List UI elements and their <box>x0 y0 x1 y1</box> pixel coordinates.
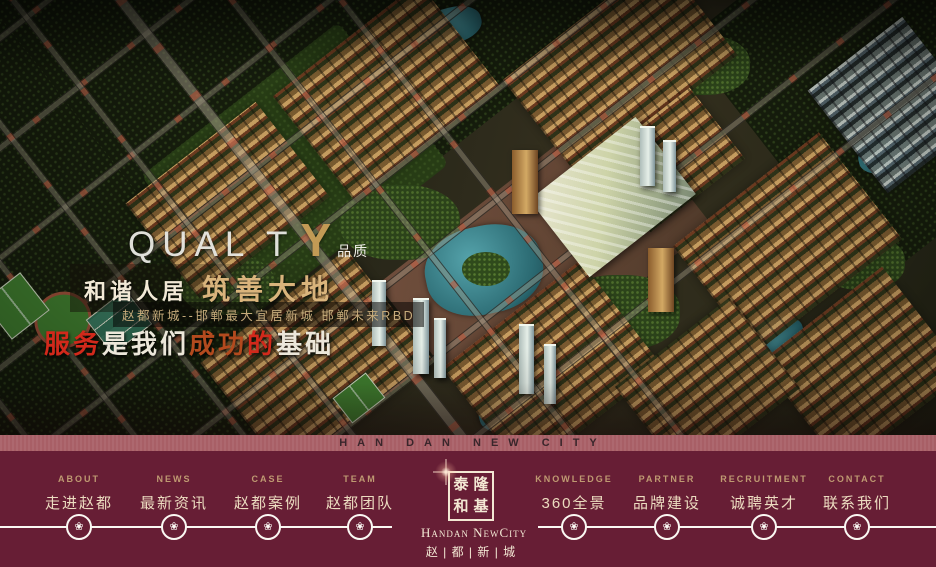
nav-team-cn: 赵都团队 <box>305 492 415 513</box>
handan-new-city-banner: HAN DAN NEW CITY <box>0 435 936 451</box>
rosette-ornament-icon: ❀ <box>844 514 870 540</box>
service-part-5: 基础 <box>276 329 334 359</box>
nav-divider-line-right <box>538 526 936 528</box>
seal-char: 隆 <box>471 475 491 495</box>
nav-item-about[interactable]: ABOUT 走进赵都 ❀ <box>24 474 134 513</box>
quality-headline: QUAL T Y 品质 <box>128 222 369 265</box>
rosette-ornament-icon: ❀ <box>561 514 587 540</box>
rosette-ornament-icon: ❀ <box>255 514 281 540</box>
nav-item-contact[interactable]: CONTACT 联系我们 ❀ <box>802 474 912 513</box>
nav-partner-cn: 品牌建设 <box>612 492 722 513</box>
seal-char: 基 <box>471 497 491 517</box>
logo-seal-icon: 泰 隆 和 基 <box>448 471 494 521</box>
site-logo[interactable]: 泰 隆 和 基 Handan NewCity 赵 | 都 | 新 | 城 <box>421 471 521 560</box>
nav-divider-line-left <box>0 526 392 528</box>
rosette-ornament-icon: ❀ <box>654 514 680 540</box>
quality-headline-cn: 品质 <box>337 241 369 261</box>
footer-nav: ABOUT 走进赵都 ❀ NEWS 最新资讯 ❀ CASE 赵都案例 ❀ TEA… <box>0 451 936 567</box>
nav-about-en: ABOUT <box>24 474 134 484</box>
nav-item-partner[interactable]: PARTNER 品牌建设 ❀ <box>612 474 722 513</box>
rosette-ornament-icon: ❀ <box>66 514 92 540</box>
quality-headline-y: Y <box>300 222 331 259</box>
rosette-ornament-icon: ❀ <box>751 514 777 540</box>
nav-contact-en: CONTACT <box>802 474 912 484</box>
service-slogan: 服务是我们成功的基础 <box>44 324 334 361</box>
logo-name-cn: 赵 | 都 | 新 | 城 <box>421 543 521 560</box>
nav-team-en: TEAM <box>305 474 415 484</box>
service-part-2: 是我们 <box>102 329 189 359</box>
service-part-1: 服务 <box>44 329 102 359</box>
nav-item-team[interactable]: TEAM 赵都团队 ❀ <box>305 474 415 513</box>
nav-about-cn: 走进赵都 <box>24 492 134 513</box>
rosette-ornament-icon: ❀ <box>347 514 373 540</box>
hero-aerial-render: QUAL T Y 品质 和谐人居 筑善大地 赵都新城--邯郸最大宜居新城 邯郸未… <box>0 0 936 435</box>
rosette-ornament-icon: ❀ <box>161 514 187 540</box>
logo-name-en: Handan NewCity <box>421 525 521 541</box>
page: QUAL T Y 品质 和谐人居 筑善大地 赵都新城--邯郸最大宜居新城 邯郸未… <box>0 0 936 567</box>
quality-headline-en: QUAL T <box>128 225 294 265</box>
seal-char: 和 <box>451 497 471 517</box>
service-part-3: 成功 <box>189 329 247 359</box>
seal-char: 泰 <box>451 475 471 495</box>
service-part-4: 的 <box>247 329 276 359</box>
nav-partner-en: PARTNER <box>612 474 722 484</box>
city-art-shape <box>0 0 936 435</box>
nav-contact-cn: 联系我们 <box>802 492 912 513</box>
banner-text: HAN DAN NEW CITY <box>329 437 607 449</box>
